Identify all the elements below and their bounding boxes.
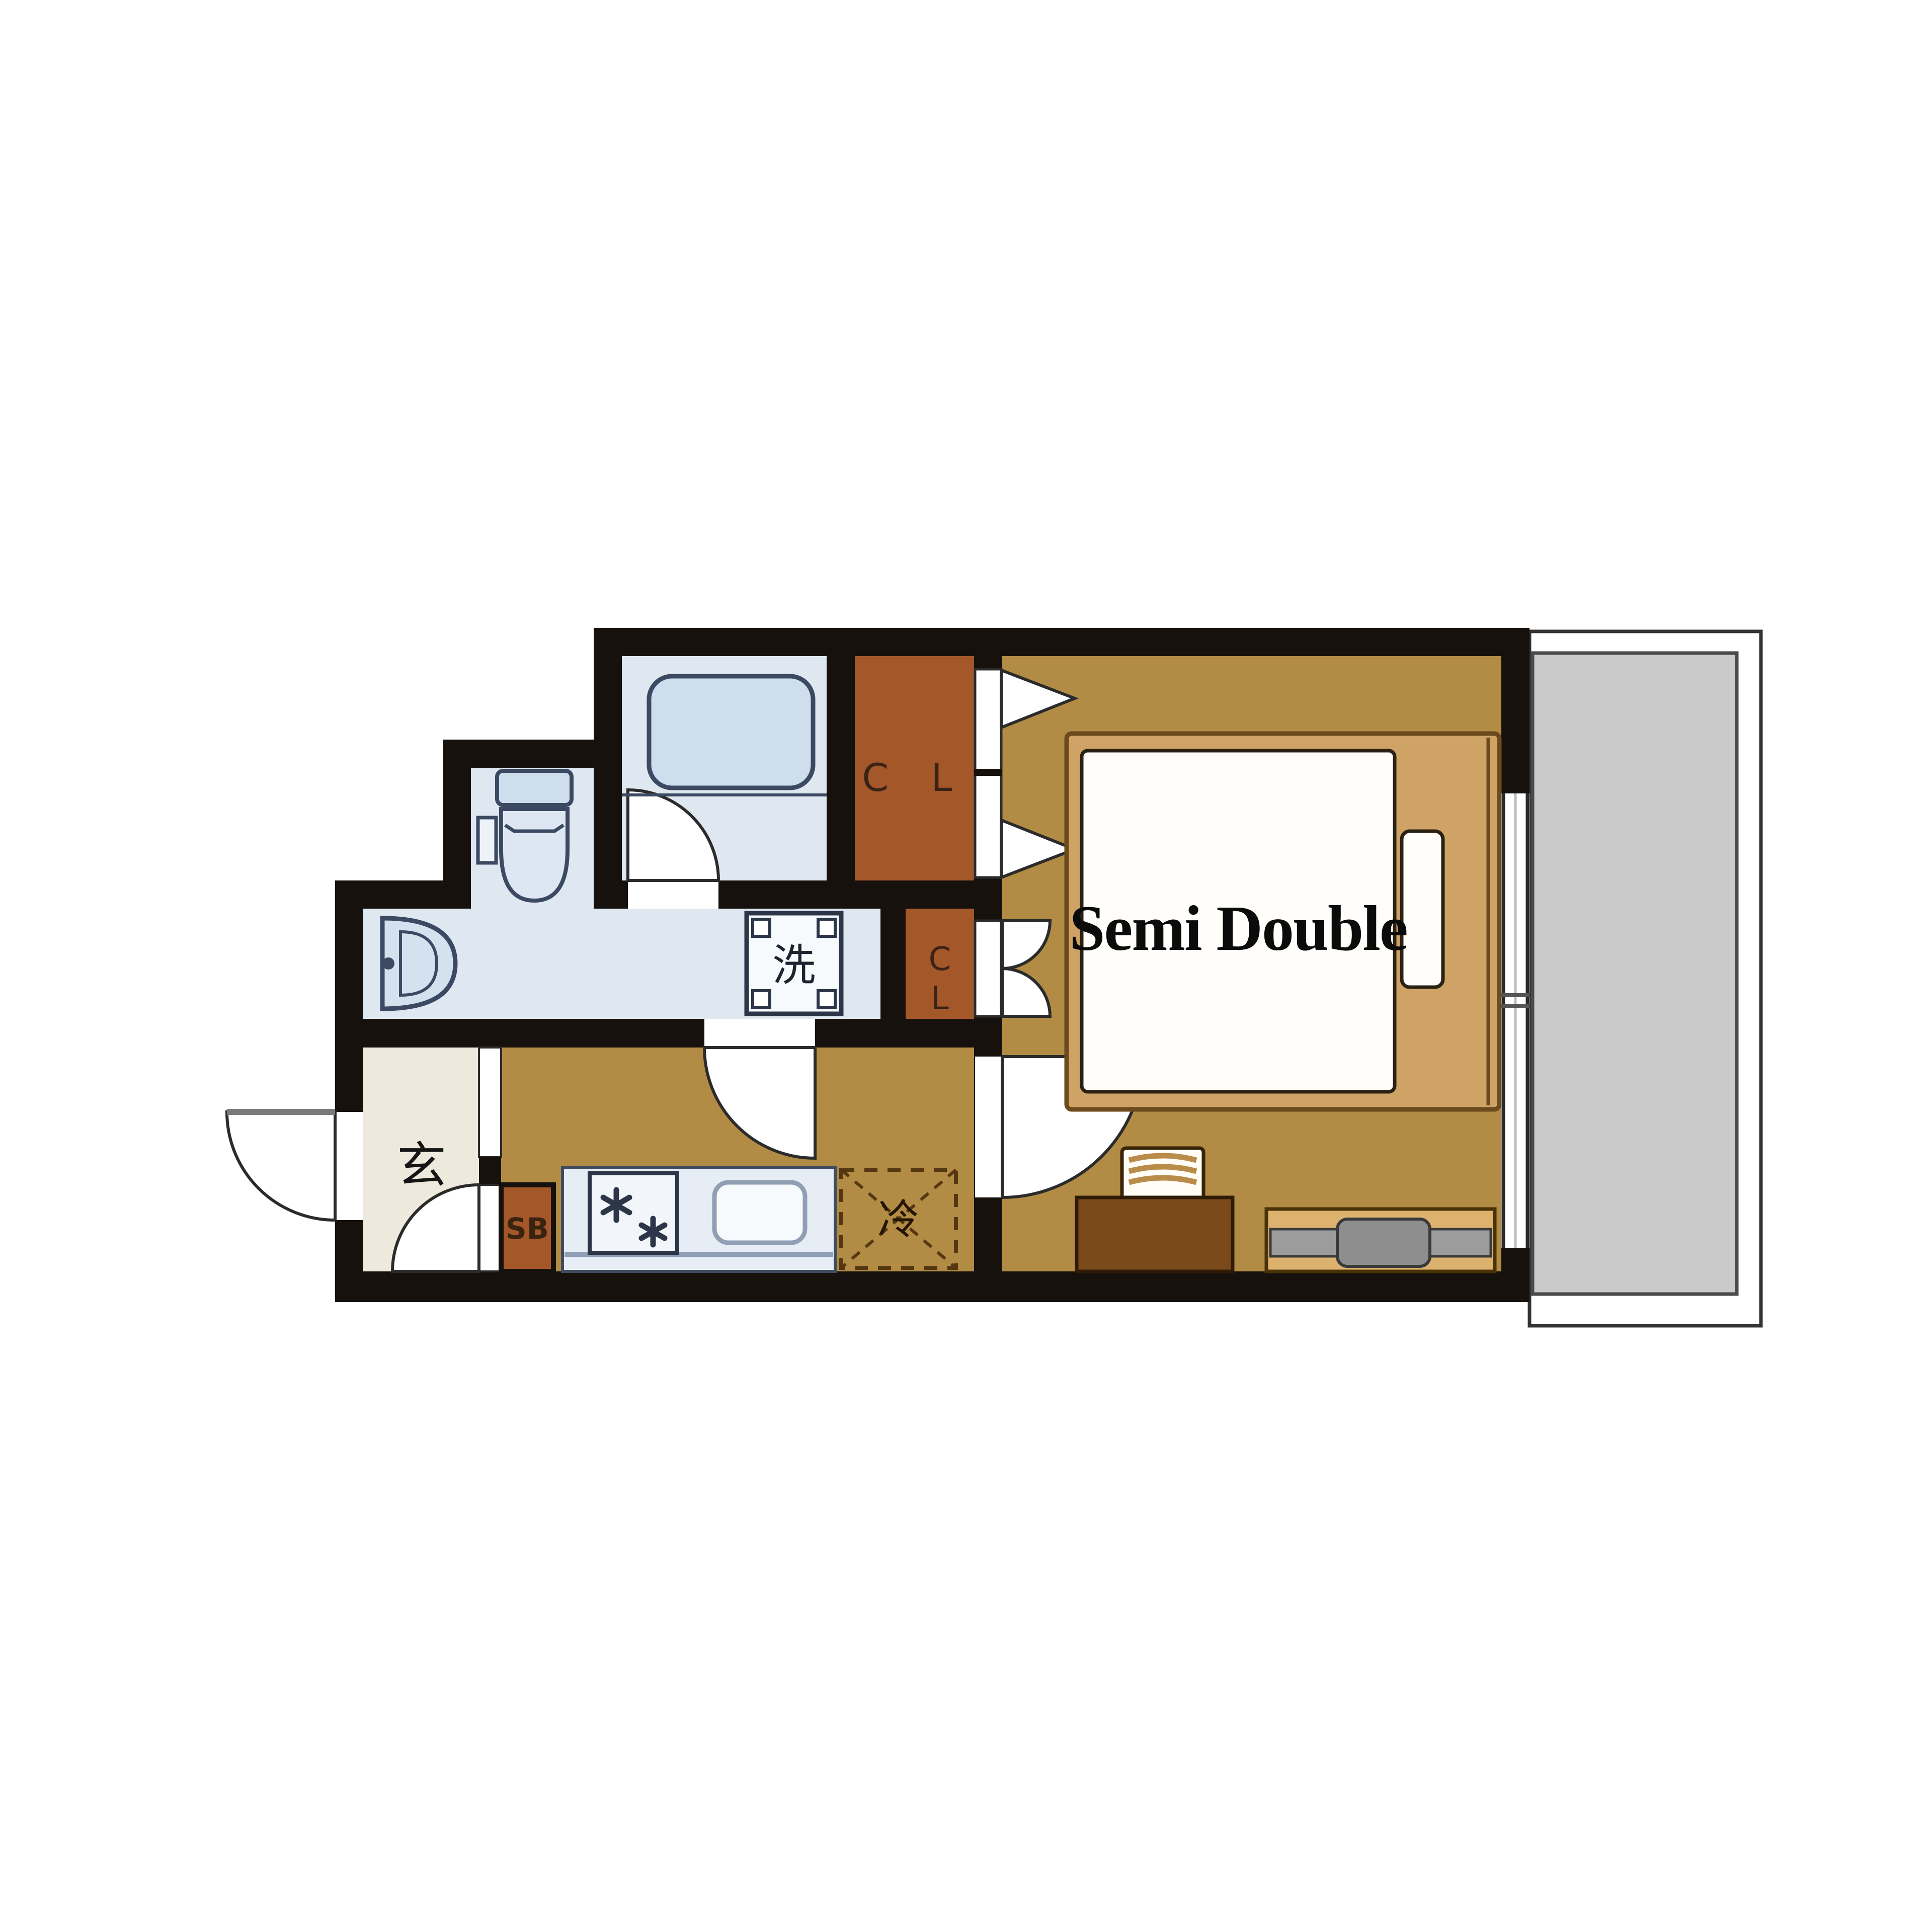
bathtub [649,676,813,788]
toilet-handle [478,818,496,863]
entrance-door-leaf [479,1185,501,1271]
bathroom-door-threshold [628,880,718,909]
washer-corner-tab [818,919,835,936]
wall-toilet-bathroom-divider [594,656,622,909]
kitchen-sink [714,1182,805,1243]
washer-corner-tab [753,991,770,1008]
washer-corner-tab [753,919,770,936]
floor-plan-page: 洗 冷 SB Semi Double [0,0,1932,1932]
toilet-tank [497,771,572,805]
closet-small-door-leaf [975,921,1001,1016]
entrance-step-strip [479,1048,501,1157]
tv-board [1266,1209,1495,1271]
sink-faucet [382,957,394,970]
wall-outer-left [335,909,363,1302]
wall-washroom-bottom [363,1019,986,1048]
kitchen [562,1167,835,1271]
wall-bottom [335,1271,1530,1302]
label-closet-small-c: C [929,941,951,978]
wall-outer-top-left [335,880,471,909]
wall-bathroom-closet-divider [827,656,855,880]
label-bed: Semi Double [1069,893,1407,964]
label-shoe-box: SB [506,1212,549,1246]
desk [1077,1197,1233,1271]
balcony-window [1501,793,1530,1248]
label-washing-machine: 洗 [772,940,816,991]
bed: Semi Double [1067,734,1499,1109]
shoe-box: SB [501,1185,553,1271]
washer-corner-tab [818,991,835,1008]
label-closet-large: C L [862,755,968,800]
balcony [1530,631,1761,1326]
label-closet-small-l: L [931,980,949,1017]
floor-plan-svg: 洗 冷 SB Semi Double [0,0,1932,1932]
washroom-door-threshold [704,1019,815,1048]
washing-machine: 洗 [747,913,841,1014]
toilet-bowl [501,809,568,901]
tv [1337,1219,1430,1266]
bed-pillow [1402,831,1443,987]
wall-top [594,628,1530,656]
wall-right-top-stub [1501,628,1530,793]
entrance-wall-stub [479,1157,501,1185]
wall-toilet-left [443,740,471,880]
balcony-deck [1533,653,1737,1294]
bathroom-fixtures [622,676,827,795]
closet-large-door-tick [974,769,1002,776]
label-refrigerator: 冷 [878,1196,919,1244]
bedroom-door-threshold [975,1057,1001,1197]
label-entrance: 玄 [397,1137,446,1194]
